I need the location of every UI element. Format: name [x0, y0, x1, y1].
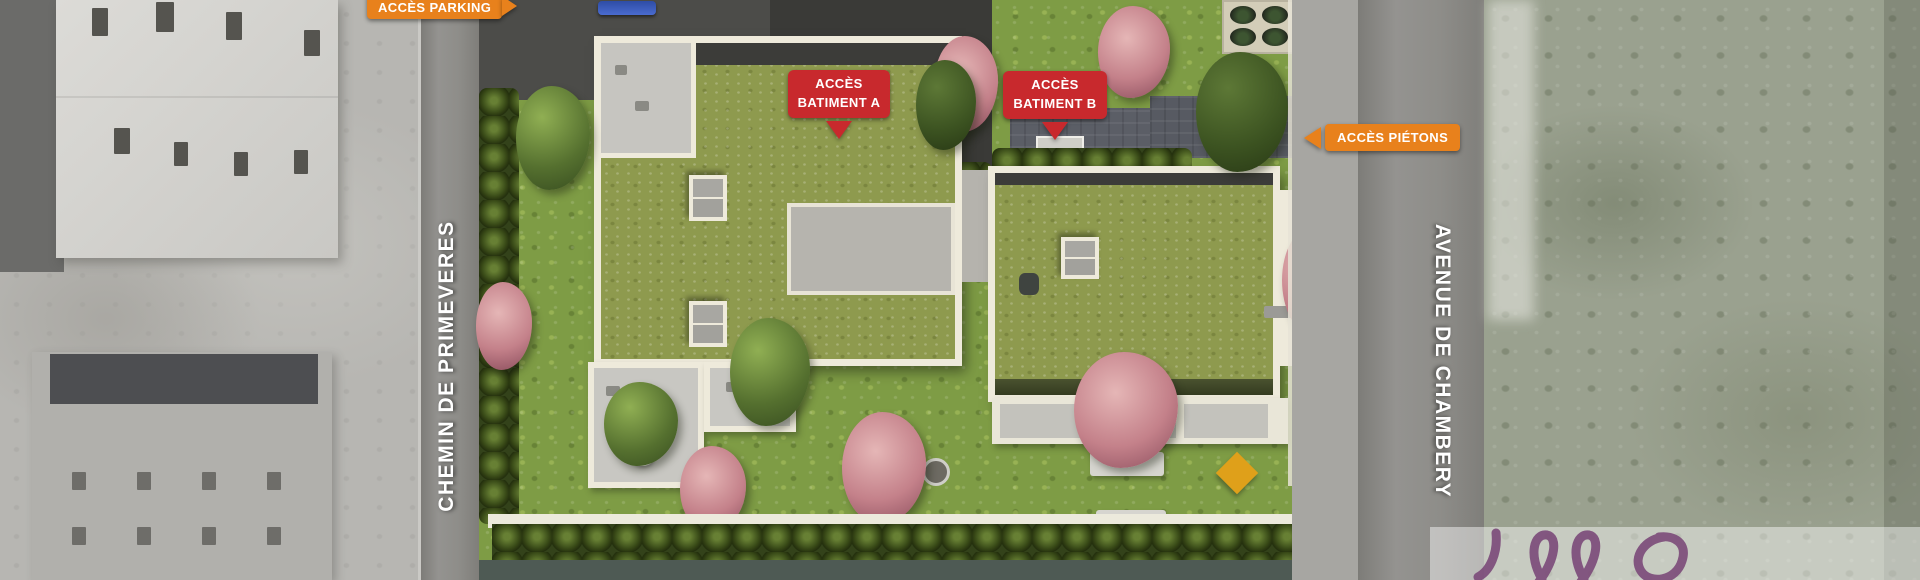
bin [1230, 28, 1256, 46]
watermark-signature [1468, 527, 1768, 580]
arrow-right-icon [502, 0, 517, 16]
roof-window [114, 128, 130, 154]
acces-batiment-b-label[interactable]: ACCÈS BATIMENT B [1003, 71, 1107, 119]
street-label-right: AVENUE DE CHAMBERY [1430, 181, 1454, 541]
field-right [1484, 0, 1920, 580]
roof-gravel-strip [995, 173, 1273, 185]
bin [1262, 28, 1288, 46]
arrow-left-icon [1304, 127, 1321, 149]
badge-line: ACCÈS [796, 75, 882, 94]
skylight [1061, 237, 1099, 279]
skylight [689, 175, 727, 221]
acces-batiment-a-label[interactable]: ACCÈS BATIMENT A [788, 70, 890, 118]
sidewalk [1292, 0, 1358, 580]
badge-line: ACCÈS [1011, 76, 1099, 95]
acces-batiment-b-annotation[interactable]: ACCÈS BATIMENT B [1003, 71, 1107, 140]
roof-ridge-line [56, 96, 338, 98]
acces-batiment-a-annotation[interactable]: ACCÈS BATIMENT A [788, 70, 890, 139]
arrow-down-icon [1042, 122, 1068, 140]
inner-courtyard [787, 203, 955, 295]
roof-window [92, 8, 108, 36]
roof-window [202, 527, 216, 545]
field-light-strip [1488, 0, 1534, 320]
roof-window [202, 472, 216, 490]
badge-line: BATIMENT B [1011, 95, 1099, 114]
watermark-band [1430, 527, 1920, 580]
acces-parking-label[interactable]: ACCÈS PARKING [367, 0, 502, 19]
roof-window [156, 2, 174, 32]
roof-window [267, 527, 281, 545]
street-label-left: CHEMIN DE PRIMEVERES [435, 186, 459, 546]
acces-parking-annotation[interactable]: ACCÈS PARKING [367, 0, 517, 19]
badge-line: BATIMENT A [796, 94, 882, 113]
neighbour-building-north [56, 0, 338, 258]
road-avenue-de-chambery [1358, 0, 1484, 580]
site-plan: CHEMIN DE PRIMEVERES [0, 0, 1920, 580]
bin [1230, 6, 1256, 24]
arrow-down-icon [826, 121, 852, 139]
roof-window [267, 472, 281, 490]
dark-roof-band [50, 354, 318, 404]
roof-gravel-strip [677, 43, 955, 65]
roof-window [137, 472, 151, 490]
roof-window [304, 30, 320, 56]
roof-window [226, 12, 242, 40]
roof-window [137, 527, 151, 545]
acces-pietons-annotation[interactable]: ACCÈS PIÉTONS [1304, 124, 1460, 151]
roof-window [234, 152, 248, 176]
terrace-cell [1000, 404, 1084, 438]
roof-window [72, 472, 86, 490]
terrace-cell [1184, 404, 1268, 438]
acces-pietons-label[interactable]: ACCÈS PIÉTONS [1325, 124, 1460, 151]
car-blue [598, 1, 656, 15]
terrace-furniture [615, 65, 627, 75]
building-a-roof [594, 36, 962, 366]
round-table [922, 458, 950, 486]
roof-window [72, 527, 86, 545]
neighbour-building-south [32, 352, 332, 580]
roof-window [174, 142, 188, 166]
drainage-strip [479, 560, 1422, 580]
bin [1262, 6, 1288, 24]
roof-terrace [601, 43, 696, 158]
neighbour-dark-roof [0, 0, 64, 272]
roof-vent [1019, 273, 1039, 295]
roof-window [294, 150, 308, 174]
skylight [689, 301, 727, 347]
terrace-furniture [635, 101, 649, 111]
field-dark-edge [1884, 0, 1920, 580]
